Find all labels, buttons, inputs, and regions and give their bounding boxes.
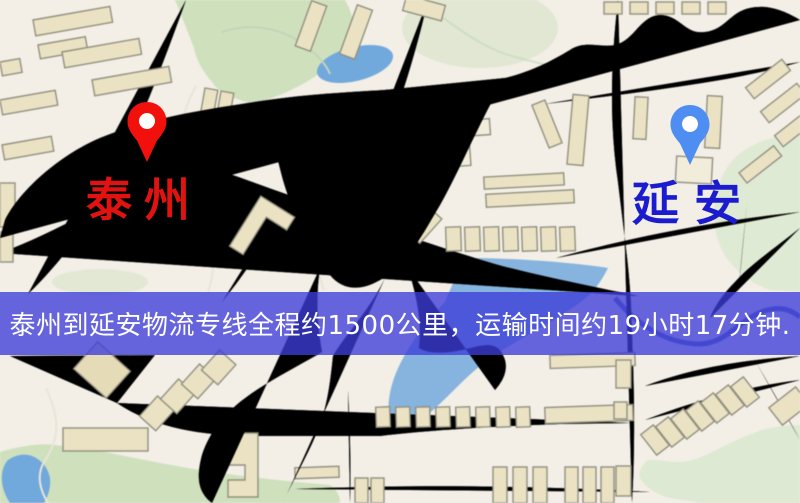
route-info-text: 泰州到延安物流专线全程约1500公里，运输时间约19小时17分钟. — [9, 305, 790, 342]
route-info-banner: 泰州到延安物流专线全程约1500公里，运输时间约19小时17分钟. — [0, 292, 800, 355]
origin-label: 泰州 — [86, 177, 202, 223]
destination-label: 延安 — [632, 181, 756, 228]
destination-pin-icon — [668, 104, 712, 166]
map-canvas — [0, 0, 800, 503]
origin-pin-icon — [125, 101, 169, 163]
logistics-route-map: 泰州 延安 泰州到延安物流专线全程约1500公里，运输时间约19小时17分钟. — [0, 0, 800, 503]
